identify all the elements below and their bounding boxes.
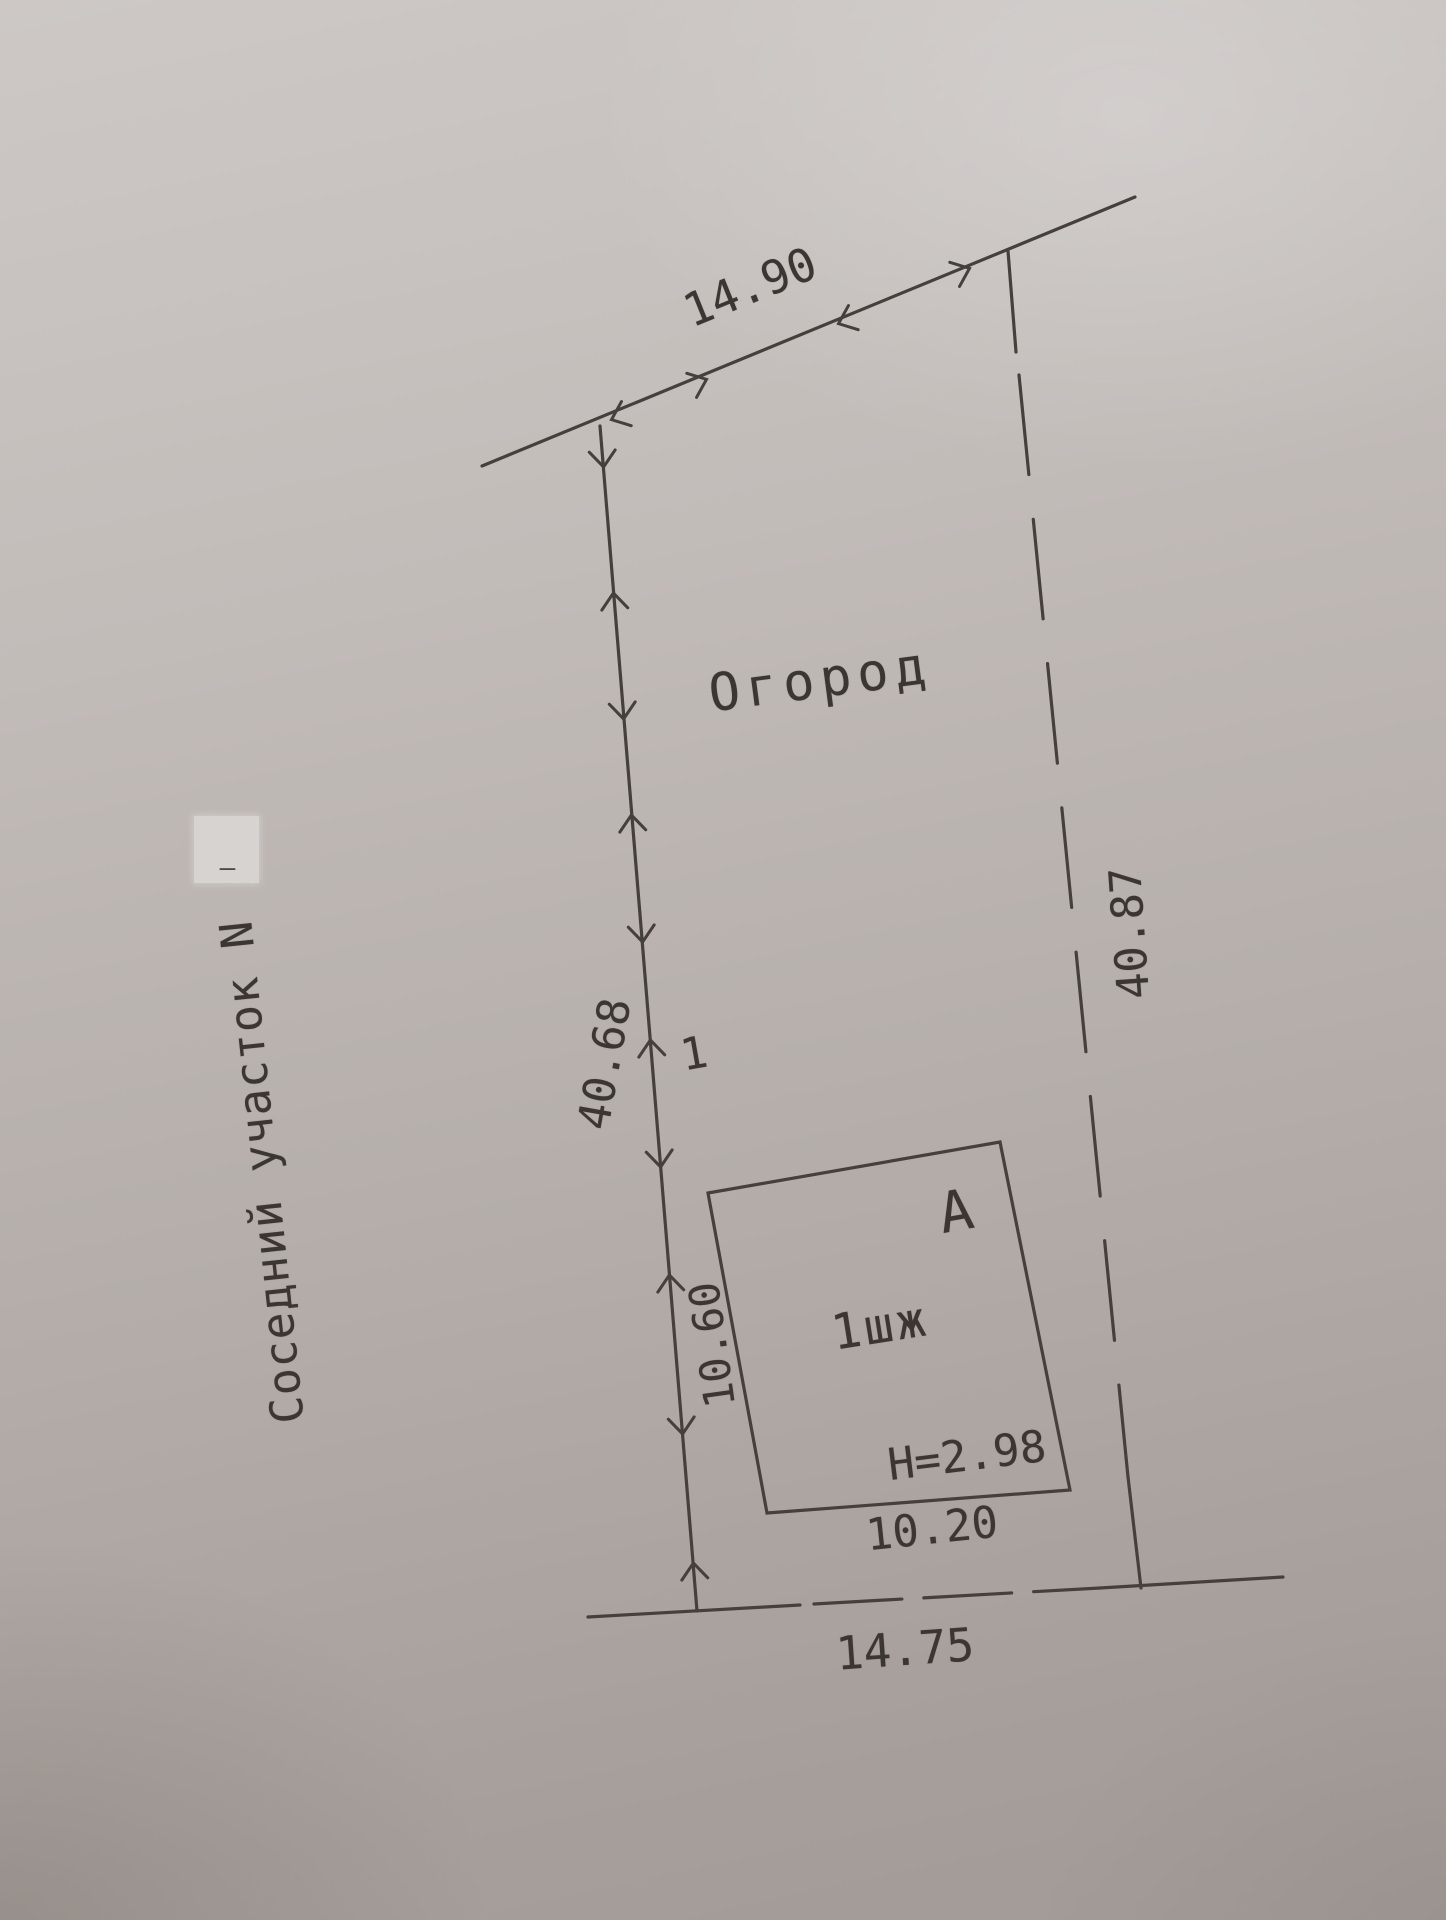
boundary-top-line: [482, 197, 1135, 466]
boundary-bottom-line-dashed: [814, 1588, 1100, 1604]
boundary-right-line-solid-bottom: [1128, 1477, 1141, 1588]
dimension-right-length: 40.87: [1100, 865, 1160, 1001]
photographed-plan: 14.90 Огород Соседний участок N 40.68 1 …: [0, 0, 1446, 1920]
redaction-dash: —: [220, 865, 234, 871]
redaction-patch: —: [194, 816, 259, 883]
boundary-bottom-line-solid-right: [1100, 1577, 1283, 1588]
dimension-bottom-length: 14.75: [834, 1617, 976, 1681]
boundary-right-line-solid-top: [1008, 251, 1016, 352]
boundary-bottom-line-solid-left: [588, 1605, 800, 1617]
